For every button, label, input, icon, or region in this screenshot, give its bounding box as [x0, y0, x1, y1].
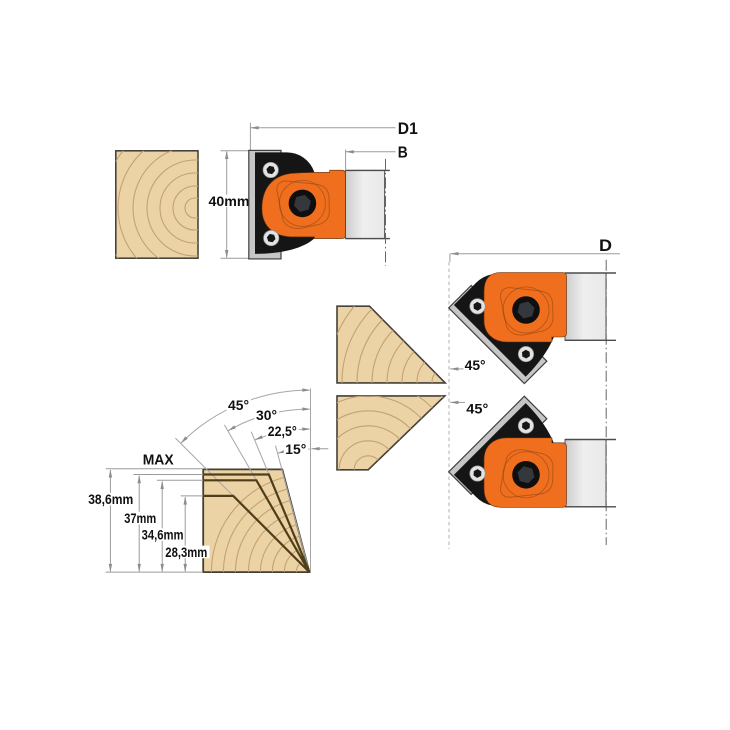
svg-text:45°: 45° — [466, 401, 488, 417]
svg-text:40mm: 40mm — [209, 193, 250, 209]
svg-text:28,3mm: 28,3mm — [165, 544, 207, 560]
svg-text:45°: 45° — [228, 397, 249, 413]
svg-text:38,6mm: 38,6mm — [88, 491, 133, 507]
svg-text:22,5°: 22,5° — [268, 423, 297, 439]
svg-text:B: B — [398, 145, 408, 162]
svg-text:45°: 45° — [465, 357, 486, 373]
svg-text:D: D — [599, 236, 612, 255]
svg-text:30°: 30° — [256, 407, 277, 423]
svg-text:34,6mm: 34,6mm — [142, 527, 184, 543]
svg-text:D1: D1 — [398, 119, 418, 138]
svg-text:37mm: 37mm — [124, 510, 156, 526]
svg-text:MAX: MAX — [143, 453, 174, 469]
svg-text:15°: 15° — [285, 441, 306, 457]
